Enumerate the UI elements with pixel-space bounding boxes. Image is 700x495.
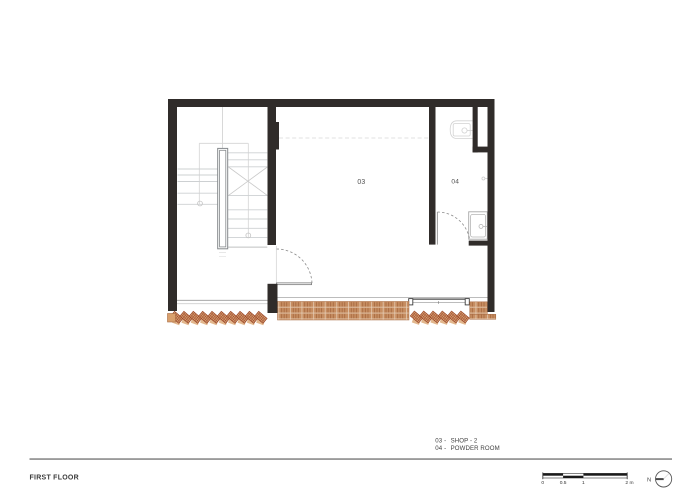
svg-text:2 m: 2 m [625,480,633,486]
svg-text:SHOP - 2: SHOP - 2 [451,438,478,445]
svg-text:04: 04 [451,178,459,185]
svg-text:0.5: 0.5 [560,480,567,486]
svg-text:0: 0 [541,480,544,486]
svg-text:03: 03 [357,179,365,186]
svg-text:FIRST FLOOR: FIRST FLOOR [30,475,79,482]
svg-text:1: 1 [582,480,585,486]
svg-text:03 -: 03 - [435,438,446,445]
svg-text:POWDER ROOM: POWDER ROOM [451,445,500,452]
svg-text:N: N [647,477,651,483]
svg-text:04 -: 04 - [435,445,446,452]
